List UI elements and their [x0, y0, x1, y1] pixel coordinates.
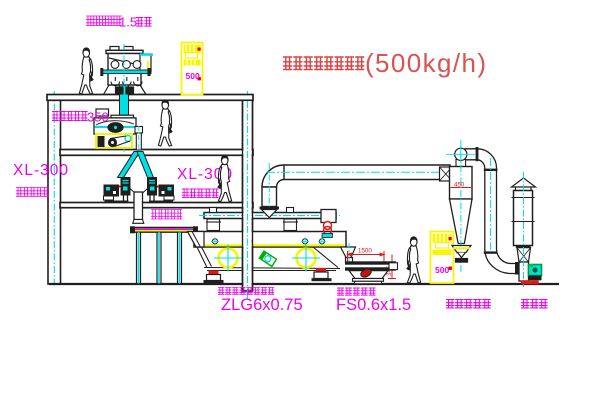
svg-text:500: 500 — [435, 265, 449, 275]
svg-text:ZLG6x0.75: ZLG6x0.75 — [221, 296, 303, 314]
svg-text:(500kg/h): (500kg/h) — [365, 48, 487, 78]
svg-text:450: 450 — [454, 182, 465, 189]
svg-text:500: 500 — [186, 71, 200, 81]
svg-text:XL-300: XL-300 — [13, 162, 69, 179]
svg-text:1.5: 1.5 — [119, 15, 137, 30]
svg-text:350: 350 — [87, 110, 109, 125]
svg-text:FS0.6x1.5: FS0.6x1.5 — [336, 296, 411, 314]
svg-text:1500: 1500 — [358, 248, 372, 255]
